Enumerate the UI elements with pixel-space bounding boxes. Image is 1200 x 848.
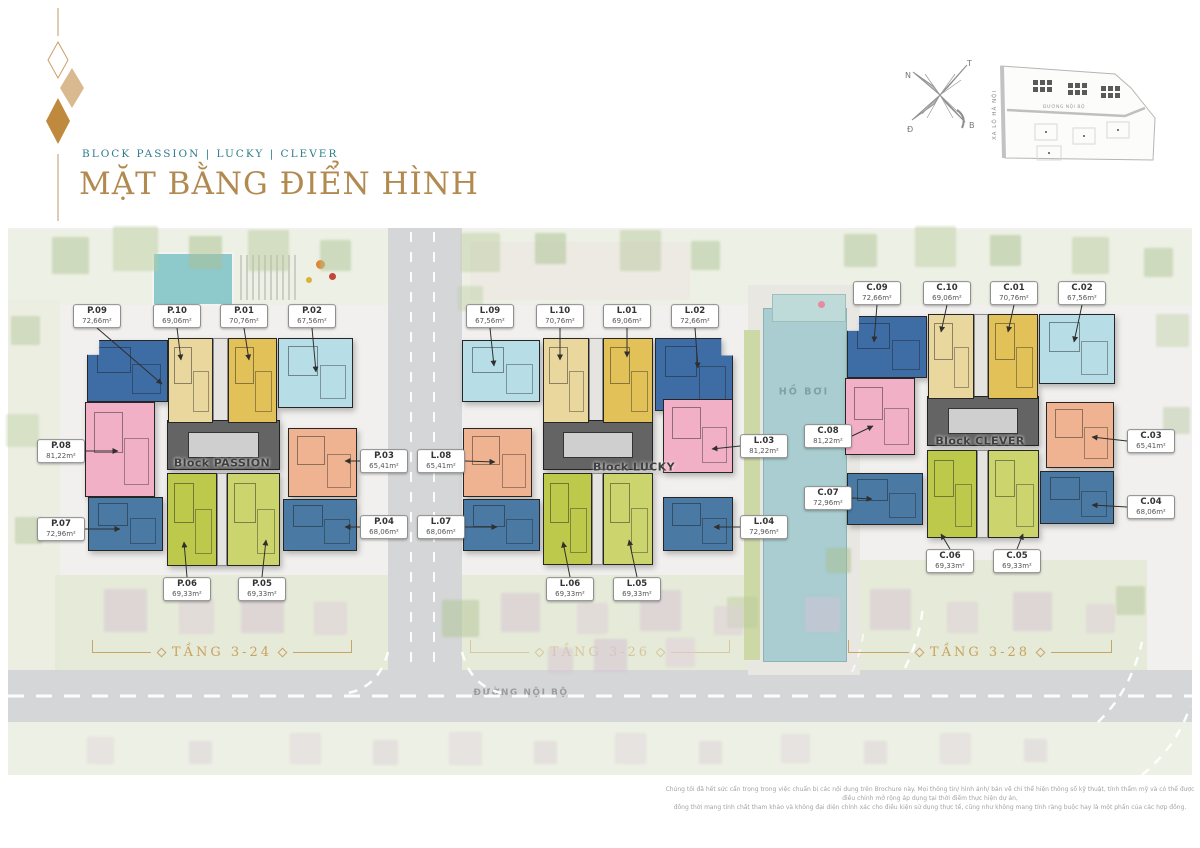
diamond-ornament-icon (534, 647, 544, 657)
unit-label-L05: L.05 69,33m² (613, 577, 661, 601)
unit-label-C10: C.10 69,06m² (923, 281, 971, 305)
compass-letter-ne: T (966, 59, 972, 68)
unit-label-P03: P.03 65,41m² (360, 449, 408, 473)
bracket-line (848, 652, 909, 653)
unit-code: L.07 (422, 518, 460, 528)
unit-label-C04: C.04 68,06m² (1127, 495, 1175, 519)
unit-area: 69,33m² (618, 590, 656, 598)
unit-label-L07: L.07 68,06m² (417, 515, 465, 539)
unit-code: L.03 (745, 437, 783, 447)
unit-label-L06: L.06 69,33m² (546, 577, 594, 601)
unit-area: 70,76m² (995, 294, 1033, 302)
disclaimer-line-2: đồng thời mang tính chất tham khảo và kh… (660, 803, 1200, 812)
unit-code: C.10 (928, 284, 966, 294)
playground-dot (316, 260, 325, 269)
compass-letter-sw: Đ (907, 125, 913, 134)
unit-area: 69,06m² (608, 317, 646, 325)
spa-pool (772, 294, 846, 322)
unit-code: C.03 (1132, 432, 1170, 442)
unit-area: 70,76m² (225, 317, 263, 325)
unit-area: 72,96m² (809, 499, 847, 507)
compass-letter-se: B (969, 121, 975, 130)
unit-area: 72,96m² (745, 528, 783, 536)
unit-code: C.08 (809, 427, 847, 437)
unit-code: L.02 (676, 307, 714, 317)
unit-code: P.08 (42, 442, 80, 452)
diamond-ornament-icon (278, 647, 288, 657)
unit-label-P06: P.06 69,33m² (163, 577, 211, 601)
unit-area: 67,56m² (471, 317, 509, 325)
unit-area: 69,33m² (243, 590, 281, 598)
unit-area: 68,06m² (1132, 508, 1170, 516)
disclaimer-line-1: Chúng tôi đã hết sức cẩn trọng trong việ… (660, 785, 1200, 803)
unit-code: P.05 (243, 580, 281, 590)
unit-area: 65,41m² (422, 462, 460, 470)
unit-area: 69,33m² (998, 562, 1036, 570)
floors-label: TẦNG 3-24 (172, 645, 272, 660)
unit-area: 69,06m² (158, 317, 196, 325)
bracket-line (92, 652, 151, 653)
unit-code: L.08 (422, 452, 460, 462)
unit-code: P.06 (168, 580, 206, 590)
compass-rose: N T Đ B (895, 52, 990, 144)
floors-label: TẦNG 3-28 (930, 645, 1030, 660)
unit-code: C.09 (858, 284, 896, 294)
unit-label-L08: L.08 65,41m² (417, 449, 465, 473)
unit-code: P.07 (42, 520, 80, 530)
unit-code: P.10 (158, 307, 196, 317)
unit-code: L.01 (608, 307, 646, 317)
unit-label-C08: C.08 81,22m² (804, 424, 852, 448)
unit-code: P.01 (225, 307, 263, 317)
unit-code: P.04 (365, 518, 403, 528)
amenity-kid-pool (152, 252, 234, 306)
sitemap-road-label: ĐƯỜNG NỘI BỘ (1043, 103, 1085, 110)
unit-label-C01: C.01 70,76m² (990, 281, 1038, 305)
unit-area: 68,06m² (365, 528, 403, 536)
unit-code: P.02 (293, 307, 331, 317)
unit-area: 68,06m² (422, 528, 460, 536)
unit-label-L09: L.09 67,56m² (466, 304, 514, 328)
unit-label-L10: L.10 70,76m² (536, 304, 584, 328)
playground-dot (306, 277, 312, 283)
unit-code: L.10 (541, 307, 579, 317)
floors-label: TẦNG 3-26 (550, 645, 650, 660)
floors-bracket-clever: TẦNG 3-28 (848, 644, 1112, 660)
unit-label-P05: P.05 69,33m² (238, 577, 286, 601)
unit-area: 69,06m² (928, 294, 966, 302)
unit-area: 69,33m² (931, 562, 969, 570)
unit-label-P07: P.07 72,96m² (37, 517, 85, 541)
unit-code: C.04 (1132, 498, 1170, 508)
greenery-band-bottom (8, 722, 1192, 775)
unit-label-C09: C.09 72,66m² (853, 281, 901, 305)
floors-bracket-lucky: TẦNG 3-26 (470, 644, 730, 660)
bracket-line (470, 652, 529, 653)
unit-code: P.03 (365, 452, 403, 462)
highway-label: XA LỘ HÀ NỘI (991, 90, 998, 140)
diamond-ornament-icon (156, 647, 166, 657)
pool-hedge (744, 330, 760, 660)
brochure-page: BLOCK PASSION | LUCKY | CLEVER MẶT BẰNG … (0, 0, 1200, 848)
unit-label-L01: L.01 69,06m² (603, 304, 651, 328)
diamond-ornament-icon (1036, 647, 1046, 657)
trees-green (0, 0, 1, 1)
site-location-map: XA LỘ HÀ NỘI ĐƯỜNG NỘI BỘ (985, 58, 1163, 176)
internal-road-label: ĐƯỜNG NỘI BỘ (473, 688, 568, 698)
unit-code: P.09 (78, 307, 116, 317)
unit-code: L.05 (618, 580, 656, 590)
diamond-ornament-icon (656, 647, 666, 657)
unit-label-C02: C.02 67,56m² (1058, 281, 1106, 305)
unit-label-P02: P.02 67,56m² (288, 304, 336, 328)
page-title: MẶT BẰNG ĐIỂN HÌNH (79, 166, 479, 202)
playground-dot (329, 273, 336, 280)
compass-letter-nw: N (905, 71, 911, 80)
flamingo-float (818, 301, 825, 308)
unit-area: 65,41m² (365, 462, 403, 470)
unit-area: 69,33m² (168, 590, 206, 598)
disclaimer: Chúng tôi đã hết sức cẩn trọng trong việ… (660, 785, 1200, 812)
unit-area: 65,41m² (1132, 442, 1170, 450)
unit-area: 81,22m² (745, 447, 783, 455)
diamond-ornament-icon (914, 647, 924, 657)
unit-area: 67,56m² (1063, 294, 1101, 302)
unit-area: 69,33m² (551, 590, 589, 598)
unit-code: C.06 (931, 552, 969, 562)
unit-code: L.09 (471, 307, 509, 317)
unit-area: 67,56m² (293, 317, 331, 325)
unit-code: C.02 (1063, 284, 1101, 294)
unit-label-L02: L.02 72,66m² (671, 304, 719, 328)
floors-bracket-passion: TẦNG 3-24 (92, 644, 352, 660)
swimming-pool (763, 308, 847, 662)
unit-label-P08: P.08 81,22m² (37, 439, 85, 463)
block-tagline: BLOCK PASSION | LUCKY | CLEVER (82, 148, 338, 160)
unit-label-P09: P.09 72,66m² (73, 304, 121, 328)
unit-area: 72,66m² (676, 317, 714, 325)
unit-area: 72,66m² (78, 317, 116, 325)
unit-code: C.07 (809, 489, 847, 499)
unit-code: C.01 (995, 284, 1033, 294)
unit-label-C06: C.06 69,33m² (926, 549, 974, 573)
unit-area: 81,22m² (42, 452, 80, 460)
amenity-plaza (470, 242, 690, 300)
unit-label-L03: L.03 81,22m² (740, 434, 788, 458)
horizontal-road (8, 670, 1192, 722)
unit-label-L04: L.04 72,96m² (740, 515, 788, 539)
unit-code: L.04 (745, 518, 783, 528)
pool-label: HỒ BƠI (779, 387, 829, 398)
unit-area: 72,66m² (858, 294, 896, 302)
unit-area: 81,22m² (809, 437, 847, 445)
unit-label-P01: P.01 70,76m² (220, 304, 268, 328)
unit-area: 70,76m² (541, 317, 579, 325)
bracket-line (1051, 652, 1112, 653)
unit-label-C05: C.05 69,33m² (993, 549, 1041, 573)
unit-code: L.06 (551, 580, 589, 590)
unit-label-C07: C.07 72,96m² (804, 486, 852, 510)
unit-label-P04: P.04 68,06m² (360, 515, 408, 539)
unit-label-C03: C.03 65,41m² (1127, 429, 1175, 453)
amenity-trellis (240, 255, 300, 300)
trees-blossom (0, 0, 1, 1)
highway-line (1002, 66, 1004, 158)
unit-code: C.05 (998, 552, 1036, 562)
unit-label-P10: P.10 69,06m² (153, 304, 201, 328)
bracket-line (293, 652, 352, 653)
unit-area: 72,96m² (42, 530, 80, 538)
bracket-line (671, 652, 730, 653)
